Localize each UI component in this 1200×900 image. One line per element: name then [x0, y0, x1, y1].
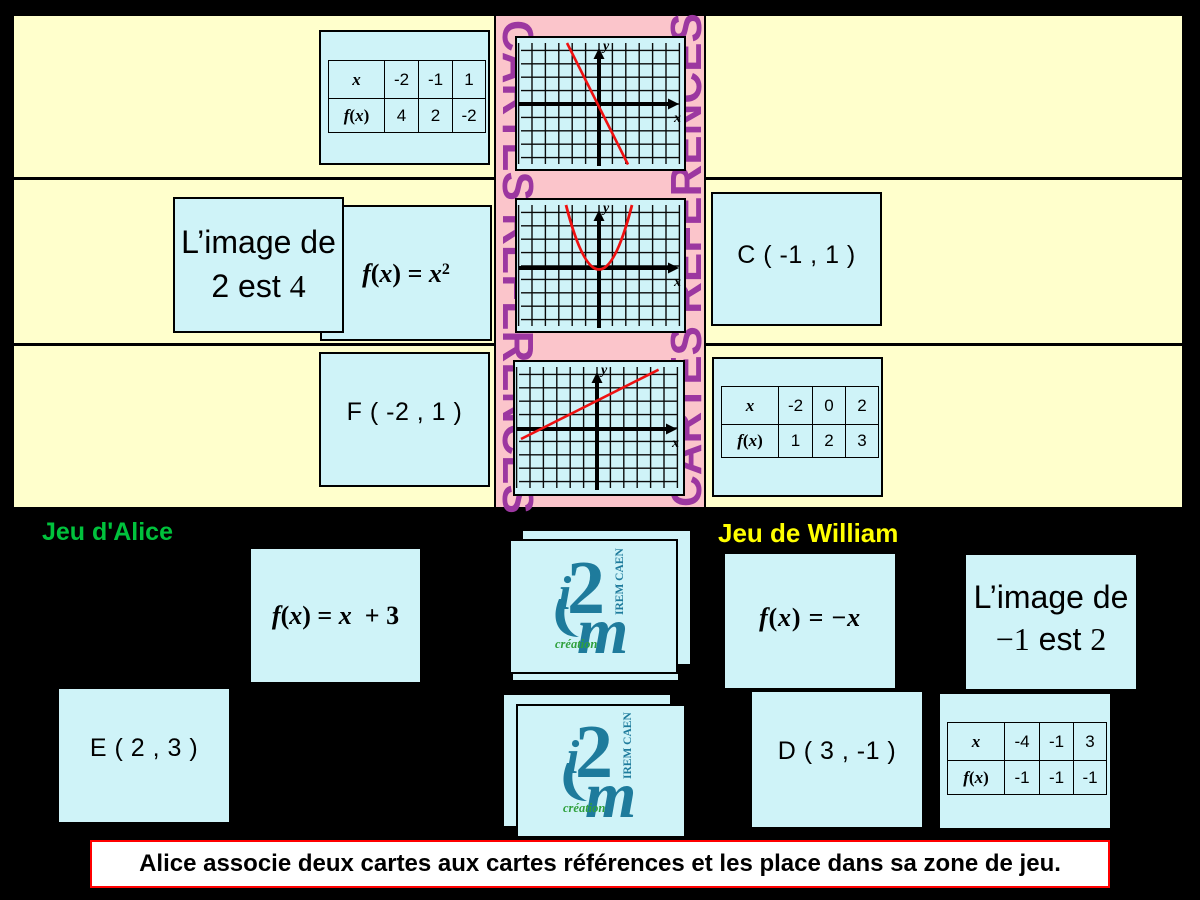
svg-text:y: y: [599, 363, 608, 378]
svg-text:IREM CAEN: IREM CAEN: [622, 712, 634, 779]
svg-text:y: y: [601, 39, 610, 54]
svg-text:création: création: [555, 637, 597, 651]
svg-text:i: i: [558, 567, 572, 620]
svg-text:i: i: [566, 731, 580, 784]
svg-text:création: création: [563, 801, 605, 815]
svg-text:x: x: [673, 275, 681, 290]
svg-text:y: y: [601, 201, 610, 216]
svg-text:x: x: [671, 436, 679, 451]
svg-text:x: x: [673, 111, 681, 126]
svg-text:IREM CAEN: IREM CAEN: [614, 548, 626, 615]
